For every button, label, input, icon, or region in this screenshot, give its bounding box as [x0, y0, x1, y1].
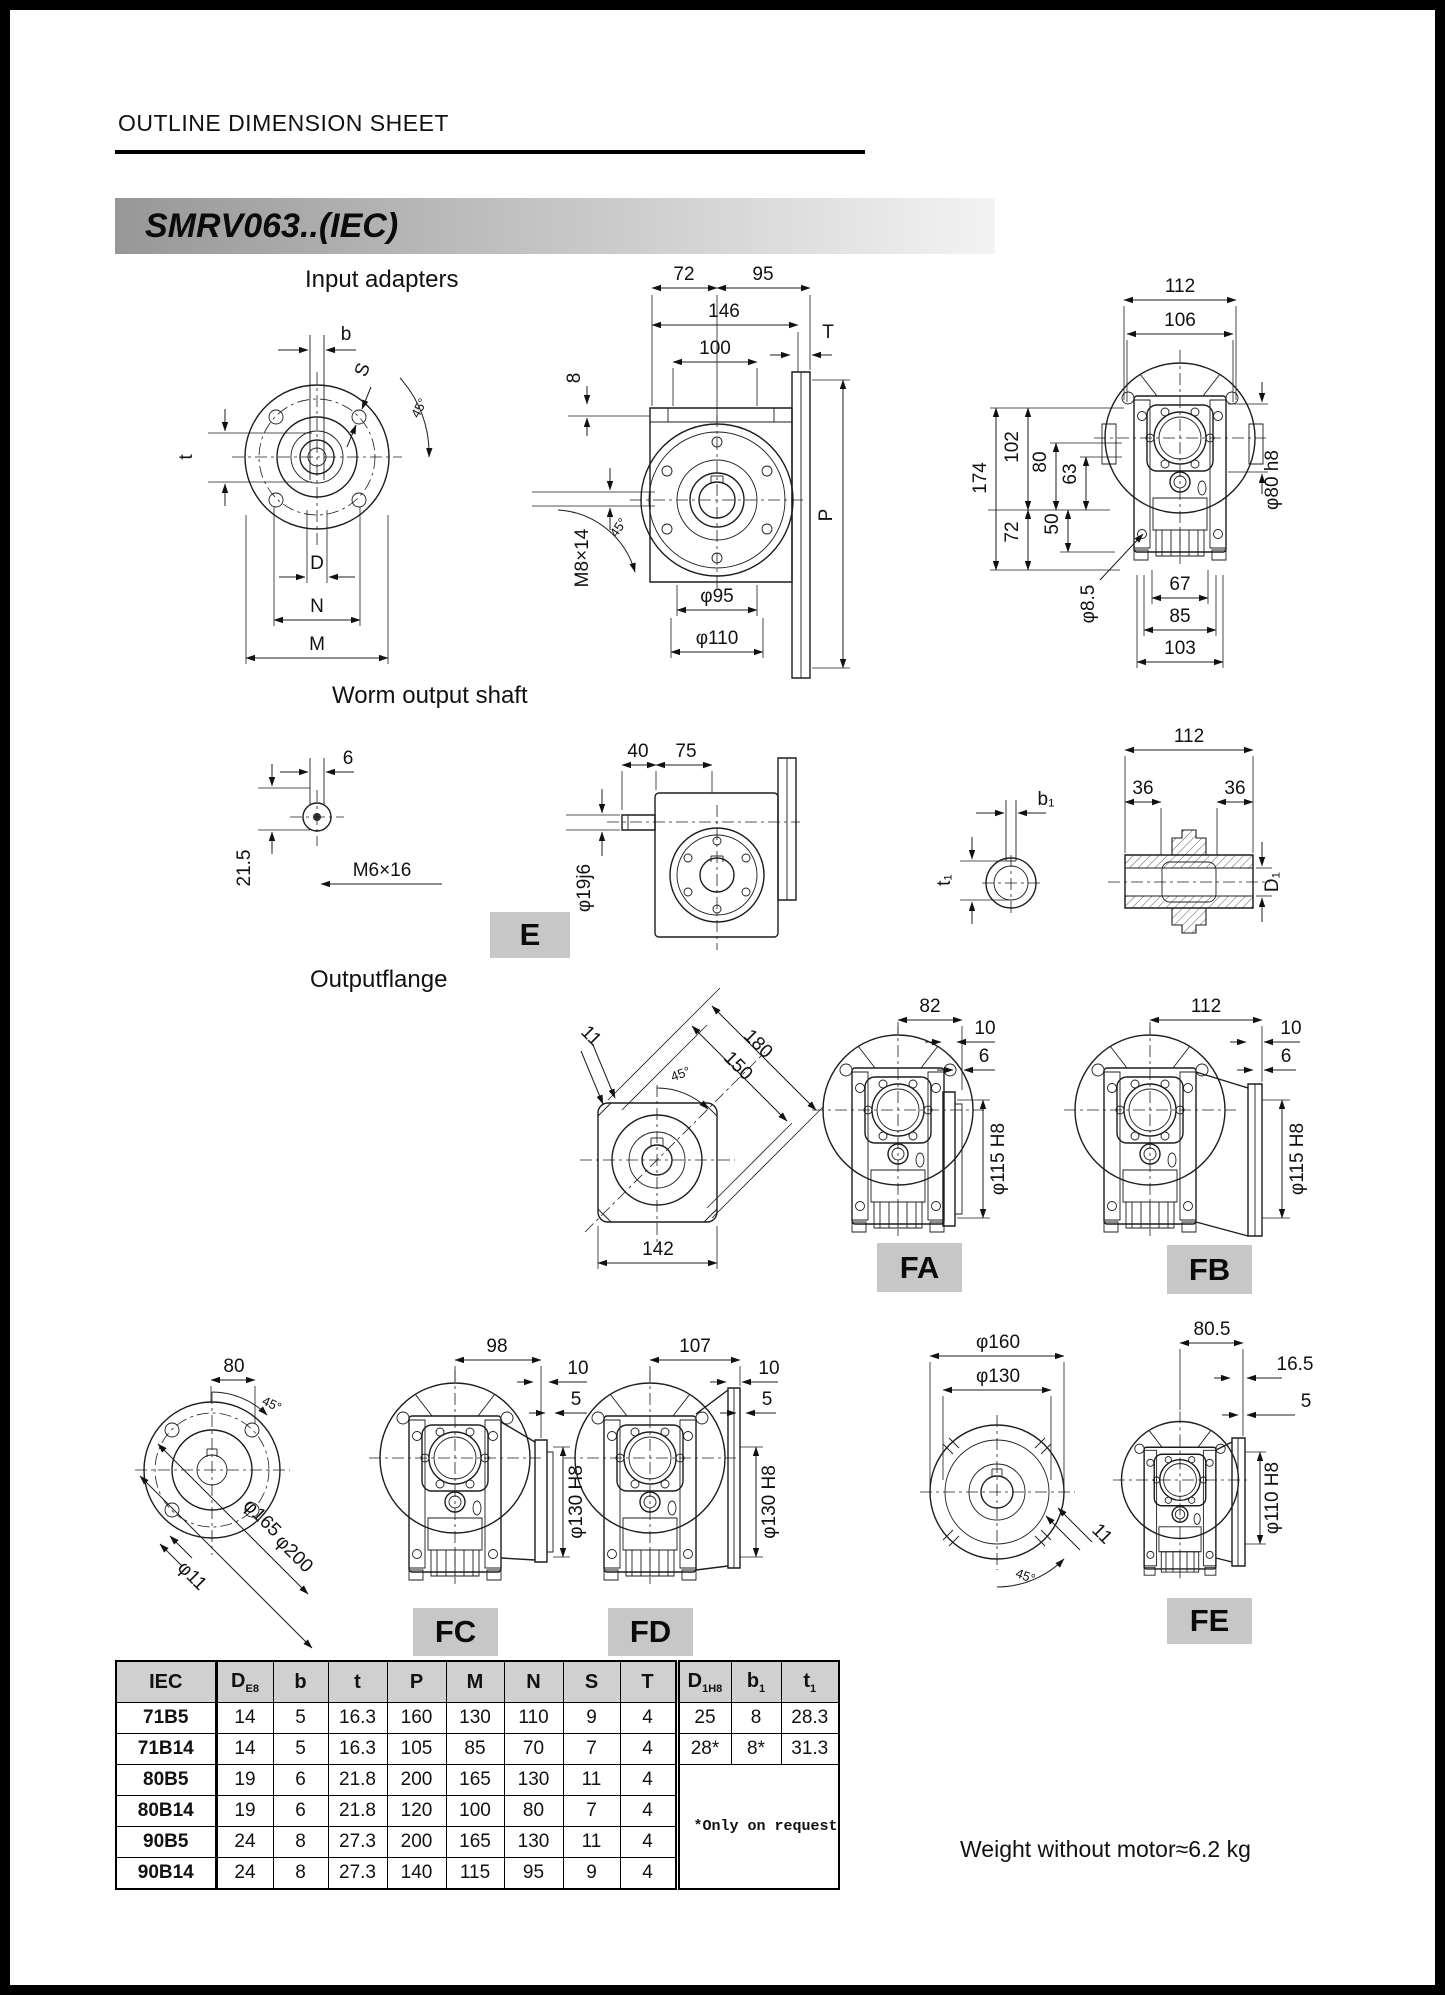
- table-row: 71B5 14 5 16.3 160 130 110 9 4 25 8 28.3: [116, 1703, 839, 1734]
- dim-label: 36: [1224, 778, 1245, 799]
- table-cell: 6: [273, 1765, 328, 1796]
- col-header-d1: D1H8: [677, 1661, 731, 1703]
- table-cell: 7: [563, 1734, 620, 1765]
- table-cell: 28*: [677, 1734, 731, 1765]
- dim-label: D₁: [1262, 872, 1283, 892]
- table-cell: 5: [273, 1734, 328, 1765]
- table-cell: 85: [446, 1734, 504, 1765]
- dim-label: 150: [719, 1047, 756, 1084]
- col-header-s: S: [563, 1661, 620, 1703]
- dim-label: φ130 H8: [759, 1465, 780, 1539]
- table-cell: 130: [504, 1827, 563, 1858]
- dim-label: P: [816, 509, 837, 522]
- table-cell: 120: [387, 1796, 446, 1827]
- dim-label: φ95: [700, 586, 733, 607]
- dim-label: 103: [1164, 638, 1196, 659]
- input-adapter-back-view: 112 106 174 102 80 63 72 50 φ8.5 67: [970, 276, 1283, 668]
- badge-fd: FD: [608, 1608, 693, 1656]
- dim-label: 5: [1301, 1391, 1312, 1412]
- dim-label: φ110 H8: [1262, 1462, 1283, 1534]
- table-cell: 200: [387, 1827, 446, 1858]
- dim-label: t₁: [934, 874, 955, 886]
- table-cell: 200: [387, 1765, 446, 1796]
- dim-label: 6: [979, 1046, 990, 1067]
- dim-label: φ130: [976, 1366, 1020, 1387]
- table-cell: 14: [216, 1703, 273, 1734]
- fb-flange-view: 112 10 6 φ115 H8: [1064, 996, 1308, 1236]
- table-cell: 105: [387, 1734, 446, 1765]
- table-cell: 7: [563, 1796, 620, 1827]
- weight-note: Weight without motor≈6.2 kg: [960, 1836, 1251, 1863]
- table-cell: 80B5: [116, 1765, 216, 1796]
- table-cell: 90B5: [116, 1827, 216, 1858]
- table-cell: 8*: [731, 1734, 781, 1765]
- table-cell: 14: [216, 1734, 273, 1765]
- table-cell: 8: [731, 1703, 781, 1734]
- dim-label: b₁: [1038, 789, 1055, 810]
- dim-label: 146: [708, 301, 740, 322]
- dim-label: 6: [1281, 1046, 1292, 1067]
- square-output-flange-view: 45° 11 180 150 142: [576, 988, 824, 1269]
- table-cell: 19: [216, 1796, 273, 1827]
- dim-label: N: [310, 596, 324, 617]
- dim-label: 100: [699, 338, 731, 359]
- table-cell: 4: [620, 1858, 677, 1890]
- outline-dimension-sheet: OUTLINE DIMENSION SHEET SMRV063..(IEC) I…: [0, 0, 1445, 1995]
- dim-label: 5: [762, 1389, 773, 1410]
- badge-fe: FE: [1167, 1598, 1252, 1644]
- table-cell: 28.3: [781, 1703, 839, 1734]
- dim-label: t: [176, 454, 197, 460]
- table-header-row: IEC DE8 b t P M N S T D1H8 b1 t1: [116, 1661, 839, 1703]
- dim-label: M8×14: [572, 528, 593, 587]
- dim-label: 8: [564, 373, 585, 384]
- col-header-m: M: [446, 1661, 504, 1703]
- dim-label: 106: [1164, 310, 1196, 331]
- table-cell: 24: [216, 1858, 273, 1890]
- section-input-adapters: Input adapters: [305, 266, 458, 294]
- table-cell: 160: [387, 1703, 446, 1734]
- dim-label: φ130 H8: [566, 1465, 587, 1539]
- table-cell: 70: [504, 1734, 563, 1765]
- table-cell: 4: [620, 1796, 677, 1827]
- input-adapter-side-view: 72 95 146 100 T P 8 M8×14 45°: [532, 264, 850, 678]
- dim-label: 112: [1165, 276, 1195, 297]
- col-header-d: DE8: [216, 1661, 273, 1703]
- fa-flange-view: 82 10 6 φ115 H8: [812, 996, 1009, 1236]
- table-cell: 5: [273, 1703, 328, 1734]
- dim-label: 45°: [1014, 1565, 1038, 1586]
- dim-label: 107: [679, 1336, 711, 1357]
- table-cell: 19: [216, 1765, 273, 1796]
- table-cell: 71B5: [116, 1703, 216, 1734]
- table-cell: 130: [446, 1703, 504, 1734]
- dim-label: φ160: [976, 1332, 1020, 1353]
- dim-label: 11: [1087, 1520, 1116, 1549]
- dim-label: φ110: [696, 628, 739, 649]
- dim-label: 11: [576, 1022, 605, 1051]
- dim-label: 72: [673, 264, 694, 285]
- section-worm-output-shaft: Worm output shaft: [332, 682, 528, 710]
- col-header-b1: b1: [731, 1661, 781, 1703]
- badge-fa: FA: [877, 1243, 962, 1292]
- fd-flange-view: 107 10 5 φ130 H8: [564, 1336, 780, 1584]
- dim-label: φ8.5: [1078, 585, 1099, 624]
- dim-label: 80: [1030, 451, 1051, 472]
- dim-label: 63: [1060, 463, 1081, 484]
- dim-label: 85: [1169, 606, 1190, 627]
- dim-label: M6×16: [353, 860, 412, 881]
- dim-label: 10: [567, 1358, 588, 1379]
- table-cell: 4: [620, 1734, 677, 1765]
- table-cell: 80: [504, 1796, 563, 1827]
- table-cell: 8: [273, 1827, 328, 1858]
- col-header-n: N: [504, 1661, 563, 1703]
- fc-flange-view: 98 10 5 φ130 H8: [369, 1336, 589, 1584]
- badge-fc: FC: [413, 1608, 498, 1656]
- table-cell: 16.3: [328, 1703, 387, 1734]
- dim-label: 10: [1280, 1018, 1301, 1039]
- output-bore-keyway-view: b₁ t₁: [934, 789, 1054, 924]
- worm-shaft-side-view: 40 75 φ19j6: [566, 741, 800, 950]
- dim-label: 10: [974, 1018, 995, 1039]
- dim-label: 112: [1174, 726, 1204, 747]
- table-cell: 9: [563, 1858, 620, 1890]
- table-cell: 11: [563, 1827, 620, 1858]
- dim-label: 72: [1002, 521, 1023, 542]
- dim-label: 102: [1002, 431, 1023, 463]
- table-cell: 24: [216, 1827, 273, 1858]
- dim-label: 40: [627, 741, 648, 762]
- dim-label: 21.5: [234, 850, 255, 887]
- dim-label: φ165: [239, 1495, 285, 1541]
- badge-fb: FB: [1167, 1245, 1252, 1294]
- dim-label: 80: [223, 1356, 244, 1377]
- table-row: 71B14 14 5 16.3 105 85 70 7 4 28* 8* 31.…: [116, 1734, 839, 1765]
- dim-label: 5: [571, 1389, 582, 1410]
- table-cell: 130: [504, 1765, 563, 1796]
- dim-label: 6: [343, 748, 354, 769]
- table-cell: 4: [620, 1765, 677, 1796]
- fe-flange-face-view: φ160 φ130 11 45°: [920, 1332, 1116, 1587]
- dim-label: 16.5: [1277, 1354, 1314, 1375]
- dim-label: 95: [752, 264, 773, 285]
- table-cell: 71B14: [116, 1734, 216, 1765]
- table-cell: 8: [273, 1858, 328, 1890]
- input-adapter-front-view: b S 45° t D N M: [176, 324, 430, 664]
- dim-label: φ115 H8: [988, 1123, 1009, 1195]
- table-note: *Only on request: [677, 1765, 839, 1890]
- dim-label: φ200: [271, 1531, 317, 1577]
- model-name: SMRV063..(IEC): [115, 207, 398, 246]
- table-cell: 90B14: [116, 1858, 216, 1890]
- dim-label: 10: [758, 1358, 779, 1379]
- dim-label: 98: [486, 1336, 507, 1357]
- table-cell: 6: [273, 1796, 328, 1827]
- page-title: OUTLINE DIMENSION SHEET: [118, 110, 449, 137]
- dim-label: D: [310, 553, 324, 574]
- table-cell: 16.3: [328, 1734, 387, 1765]
- badge-e: E: [490, 912, 570, 958]
- fe-flange-view: 80.5 16.5 5 φ110 H8: [1113, 1319, 1314, 1578]
- col-header-iec: IEC: [116, 1661, 216, 1703]
- table-cell: 100: [446, 1796, 504, 1827]
- dim-label: b: [341, 324, 352, 345]
- dim-label: S: [351, 360, 375, 380]
- dim-label: M: [309, 634, 325, 655]
- round-output-flange-view: 80 45° φ11 φ165 φ200: [135, 1356, 317, 1648]
- model-header-bar: SMRV063..(IEC): [115, 198, 995, 254]
- dim-label: 180: [739, 1025, 776, 1062]
- col-header-t: t: [328, 1661, 387, 1703]
- dim-label: φ11: [173, 1557, 211, 1595]
- table-cell: 11: [563, 1765, 620, 1796]
- title-rule: [115, 150, 865, 154]
- table-cell: 165: [446, 1765, 504, 1796]
- dim-label: 45°: [408, 396, 430, 420]
- section-outputflange: Outputflange: [310, 966, 447, 994]
- table-cell: 4: [620, 1827, 677, 1858]
- table-cell: 110: [504, 1703, 563, 1734]
- table-cell: 115: [446, 1858, 504, 1890]
- dim-label: 80.5: [1194, 1319, 1231, 1340]
- table-cell: 95: [504, 1858, 563, 1890]
- table-cell: 21.8: [328, 1765, 387, 1796]
- table-cell: 80B14: [116, 1796, 216, 1827]
- table-cell: 140: [387, 1858, 446, 1890]
- table-cell: 25: [677, 1703, 731, 1734]
- dim-label: φ115 H8: [1287, 1123, 1308, 1195]
- col-header-b: b: [273, 1661, 328, 1703]
- dim-label: 45°: [260, 1393, 284, 1415]
- dim-label: T: [822, 322, 834, 343]
- table-cell: 27.3: [328, 1827, 387, 1858]
- table-row: 80B5 19 6 21.8 200 165 130 11 4 *Only on…: [116, 1765, 839, 1796]
- hollow-shaft-section-view: 112 36 36 D₁: [1108, 726, 1283, 933]
- dim-label: 82: [919, 996, 940, 1017]
- table-cell: 9: [563, 1703, 620, 1734]
- table-cell: 4: [620, 1703, 677, 1734]
- dim-label: 174: [970, 462, 991, 494]
- dim-label: 75: [675, 741, 696, 762]
- table-cell: 21.8: [328, 1796, 387, 1827]
- worm-shaft-end-view: 6 21.5 M6×16: [234, 748, 442, 886]
- dim-label: 50: [1042, 513, 1063, 534]
- col-header-t1: t1: [781, 1661, 839, 1703]
- dim-label: φ19j6: [574, 864, 595, 912]
- dim-label: φ80 h8: [1262, 450, 1283, 510]
- dim-label: 67: [1169, 574, 1190, 595]
- dim-label: 45°: [669, 1063, 693, 1084]
- dim-label: 112: [1191, 996, 1221, 1017]
- dim-label: 45°: [607, 515, 631, 540]
- col-header-p: P: [387, 1661, 446, 1703]
- iec-dimension-table: IEC DE8 b t P M N S T D1H8 b1 t1 71B5 14…: [115, 1660, 840, 1890]
- table-cell: 27.3: [328, 1858, 387, 1890]
- col-header-t2: T: [620, 1661, 677, 1703]
- table-cell: 31.3: [781, 1734, 839, 1765]
- dim-label: 142: [642, 1239, 674, 1260]
- dim-label: 36: [1132, 778, 1153, 799]
- table-cell: 165: [446, 1827, 504, 1858]
